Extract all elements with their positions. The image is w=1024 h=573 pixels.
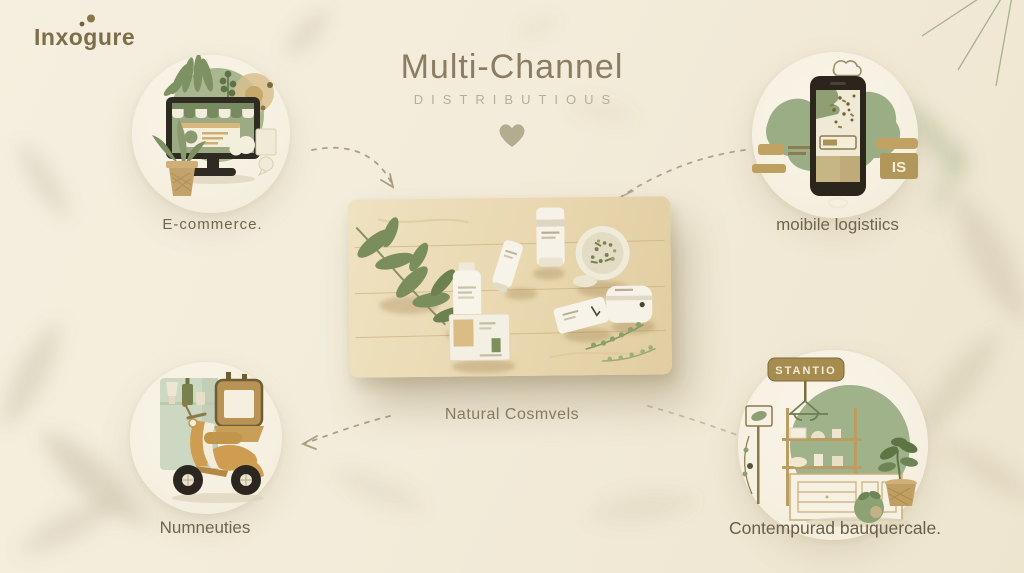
smartphone-cloud-icon: IS <box>752 52 918 218</box>
herb-bowl <box>572 226 630 288</box>
badge-is: IS <box>892 159 906 176</box>
logo-sprout-dots-icon <box>78 14 100 28</box>
rear-wheel <box>231 465 261 495</box>
infographic-canvas: Inxogure Multi-Channel DISTRIBUTIOUS <box>0 0 1024 573</box>
product-box <box>449 314 509 361</box>
store-sign-text: STANTIO <box>775 365 836 377</box>
natural-cosmetics-arrangement <box>348 196 672 377</box>
label-mobile-logistics: moibile logistiics <box>745 215 930 235</box>
channel-retail: STANTIO <box>738 350 928 540</box>
label-natural-cosmetics: Natural Cosmvels <box>362 406 662 424</box>
label-ecommerce: E-commerce. <box>120 216 305 233</box>
label-retail: Contempurad bauquercale. <box>710 518 960 539</box>
desktop-storefront-icon <box>132 55 290 213</box>
heart-icon <box>497 121 527 148</box>
cream-jar <box>606 286 652 323</box>
tube-large <box>536 207 565 266</box>
delivery-scooter-icon <box>130 362 282 514</box>
front-wheel <box>173 465 203 495</box>
tube-small <box>490 239 524 294</box>
channel-ecommerce <box>132 55 290 213</box>
channel-mobile-logistics: IS <box>752 52 918 218</box>
label-delivery: Numneuties <box>110 518 300 538</box>
store-shelf-icon: STANTIO <box>738 350 928 540</box>
brand-logo: Inxogure <box>34 24 135 51</box>
channel-delivery <box>130 362 282 514</box>
soap-bar <box>553 296 610 334</box>
product-board <box>348 196 672 377</box>
